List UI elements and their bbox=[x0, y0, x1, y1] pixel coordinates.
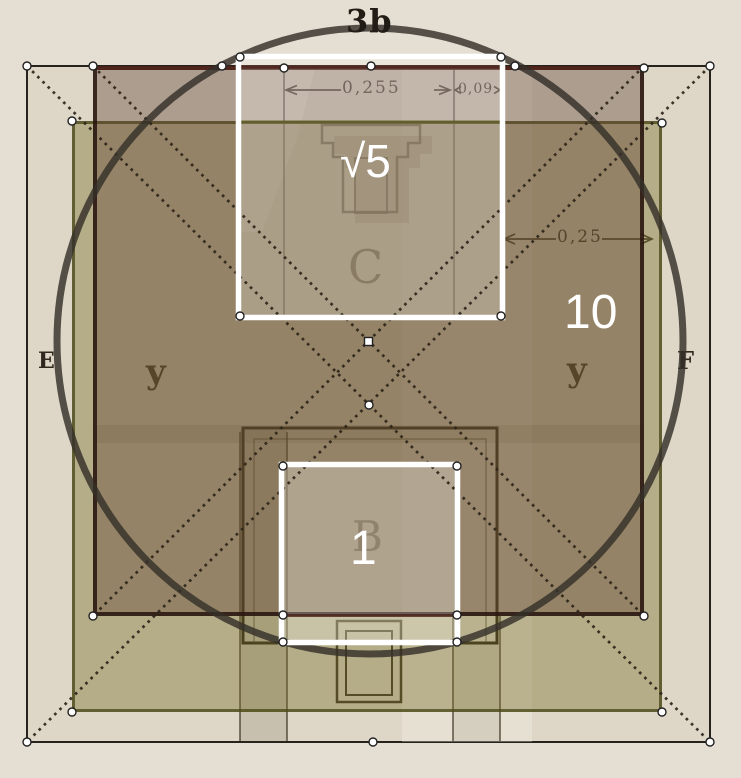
circle-center-node bbox=[365, 338, 373, 346]
plate-figure: E F y y C B 0,255 0,09 0,25 bbox=[0, 0, 741, 778]
outer-center-node bbox=[365, 401, 373, 409]
plate-number-label: 3b bbox=[346, 2, 393, 40]
sqrt5-label: √5 bbox=[340, 134, 391, 188]
unit-label: 1 bbox=[350, 521, 377, 576]
annotation-layer bbox=[0, 0, 741, 778]
ten-label: 10 bbox=[564, 285, 617, 340]
